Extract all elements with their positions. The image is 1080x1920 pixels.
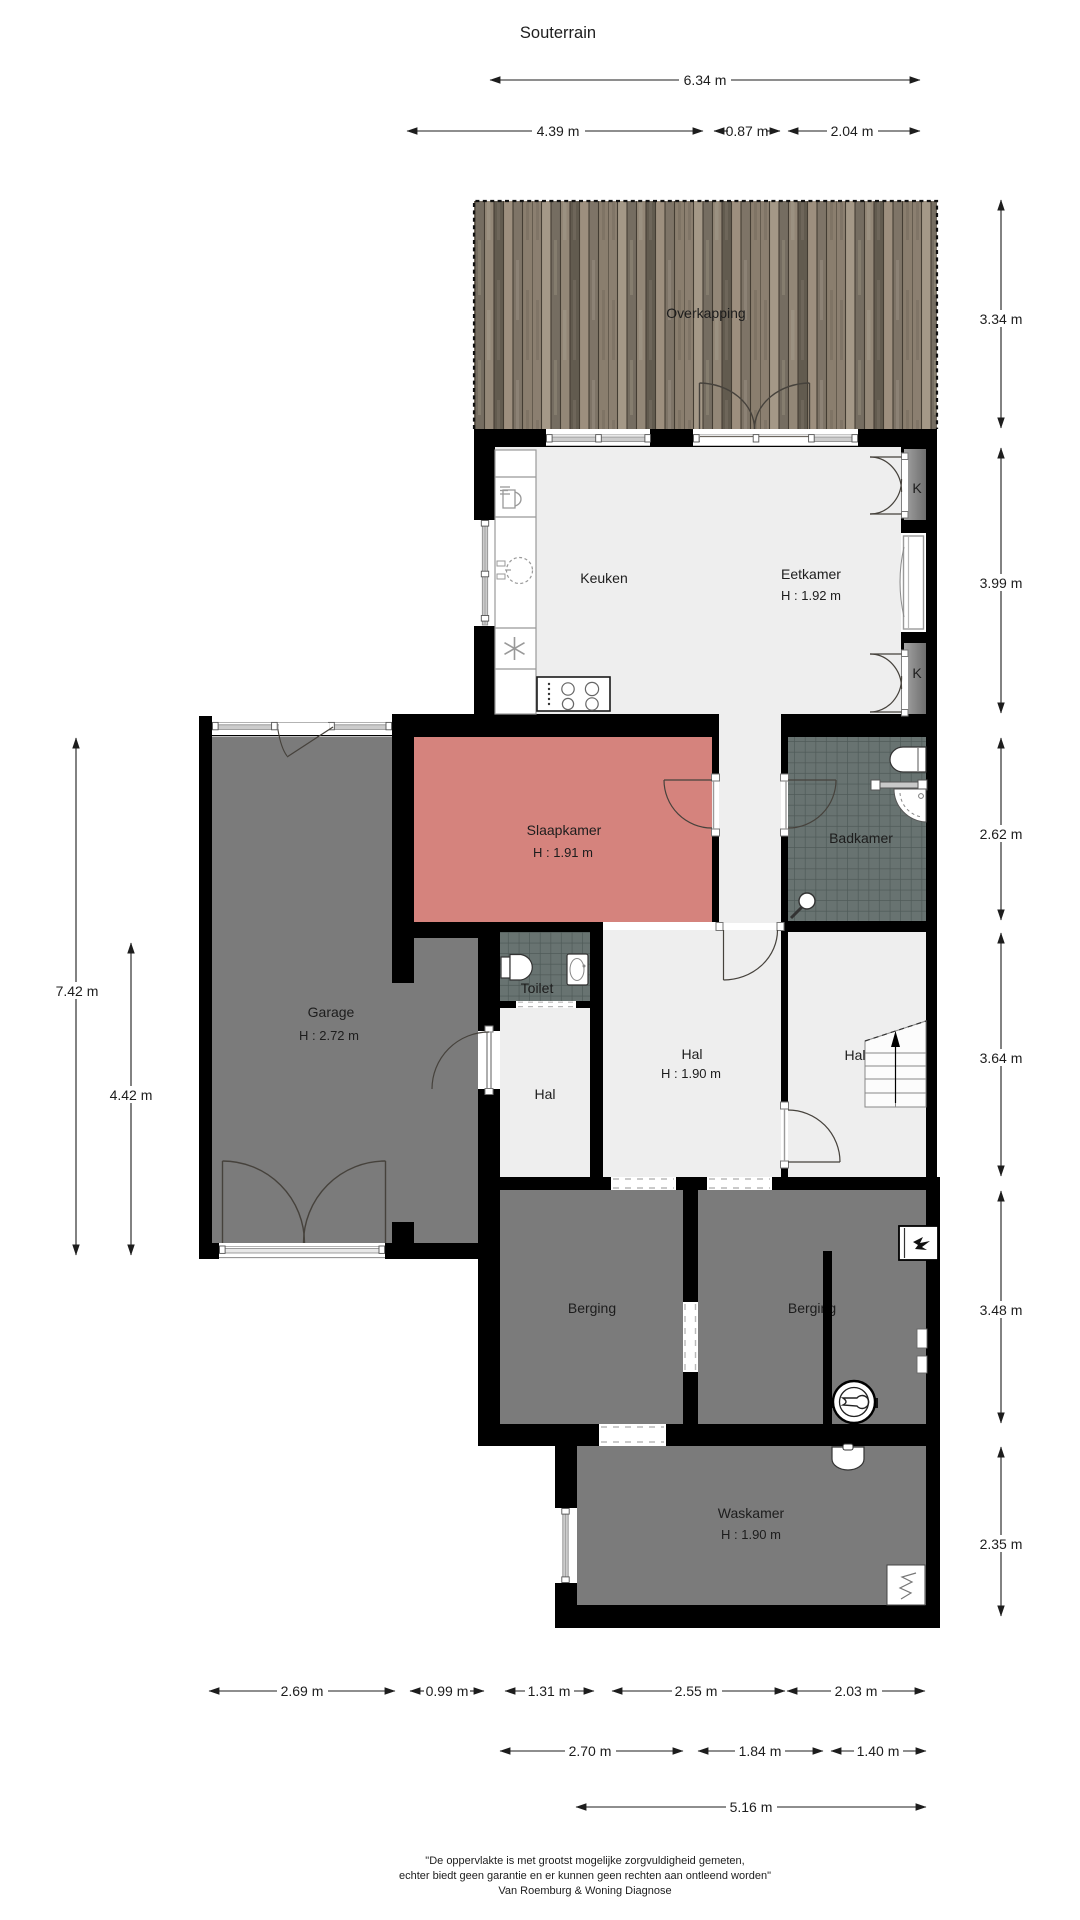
svg-text:H : 1.91 m: H : 1.91 m — [533, 845, 593, 860]
svg-text:Van Roemburg & Woning Diagnose: Van Roemburg & Woning Diagnose — [498, 1885, 671, 1897]
svg-text:K: K — [912, 665, 922, 681]
svg-text:H : 2.72 m: H : 2.72 m — [299, 1028, 359, 1043]
svg-text:3.99 m: 3.99 m — [980, 575, 1023, 591]
svg-text:2.03 m: 2.03 m — [835, 1683, 878, 1699]
svg-text:5.16 m: 5.16 m — [730, 1799, 773, 1815]
svg-text:K: K — [912, 480, 922, 496]
svg-text:Eetkamer: Eetkamer — [781, 566, 841, 582]
svg-text:2.55 m: 2.55 m — [675, 1683, 718, 1699]
svg-text:1.40 m: 1.40 m — [857, 1743, 900, 1759]
svg-text:2.70 m: 2.70 m — [569, 1743, 612, 1759]
svg-text:2.35 m: 2.35 m — [980, 1536, 1023, 1552]
svg-text:Hal: Hal — [844, 1047, 865, 1063]
svg-text:Waskamer: Waskamer — [718, 1505, 785, 1521]
svg-text:0.87 m: 0.87 m — [726, 123, 769, 139]
svg-text:Garage: Garage — [308, 1004, 355, 1020]
svg-text:"De oppervlakte is met grootst: "De oppervlakte is met grootst mogelijke… — [425, 1855, 744, 1867]
svg-text:Souterrain: Souterrain — [520, 24, 596, 42]
svg-text:Toilet: Toilet — [521, 980, 554, 996]
svg-text:H : 1.90 m: H : 1.90 m — [661, 1066, 721, 1081]
svg-text:Badkamer: Badkamer — [829, 830, 893, 846]
svg-text:3.48 m: 3.48 m — [980, 1302, 1023, 1318]
svg-text:H : 1.90 m: H : 1.90 m — [721, 1527, 781, 1542]
svg-text:3.64 m: 3.64 m — [980, 1050, 1023, 1066]
svg-text:4.42 m: 4.42 m — [110, 1087, 153, 1103]
svg-text:Hal: Hal — [534, 1086, 555, 1102]
svg-text:6.34 m: 6.34 m — [684, 72, 727, 88]
svg-text:Overkapping: Overkapping — [666, 305, 745, 321]
svg-text:Berging: Berging — [568, 1300, 616, 1316]
svg-text:Slaapkamer: Slaapkamer — [527, 822, 602, 838]
svg-text:H : 1.92 m: H : 1.92 m — [781, 588, 841, 603]
svg-text:4.39 m: 4.39 m — [537, 123, 580, 139]
svg-text:1.84 m: 1.84 m — [739, 1743, 782, 1759]
svg-text:0.99 m: 0.99 m — [426, 1683, 469, 1699]
svg-text:3.34 m: 3.34 m — [980, 311, 1023, 327]
svg-text:1.31 m: 1.31 m — [528, 1683, 571, 1699]
svg-text:2.62 m: 2.62 m — [980, 826, 1023, 842]
svg-text:echter biedt geen garantie en: echter biedt geen garantie en er kunnen … — [399, 1870, 771, 1882]
svg-text:2.69 m: 2.69 m — [281, 1683, 324, 1699]
svg-text:7.42 m: 7.42 m — [56, 983, 99, 999]
svg-text:2.04 m: 2.04 m — [831, 123, 874, 139]
svg-text:Hal: Hal — [681, 1046, 702, 1062]
svg-text:Keuken: Keuken — [580, 570, 627, 586]
